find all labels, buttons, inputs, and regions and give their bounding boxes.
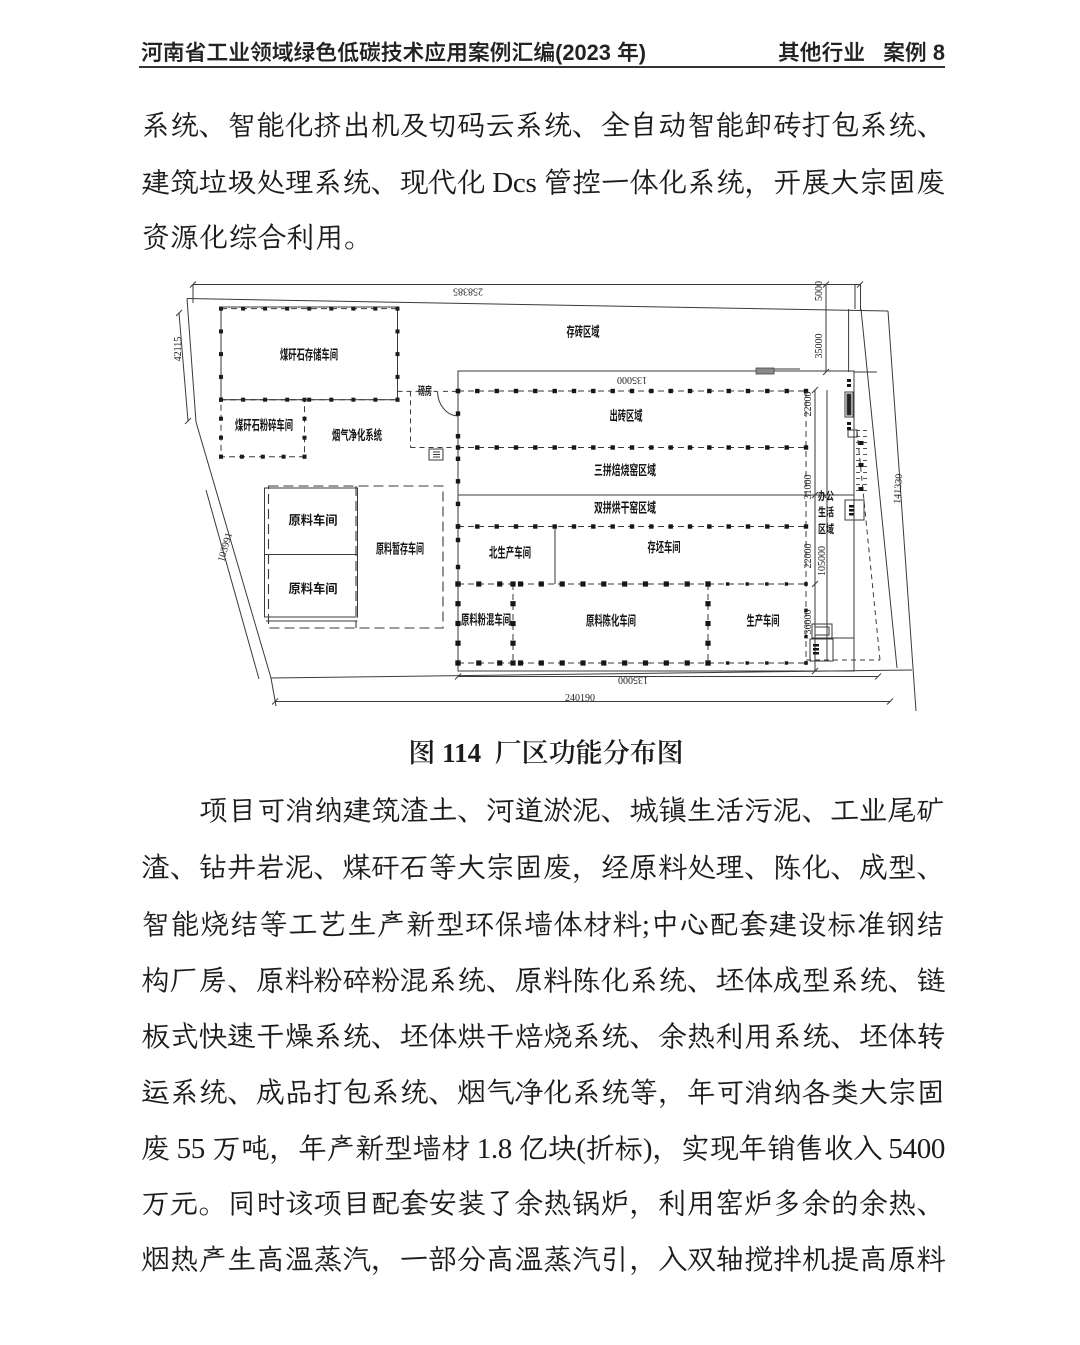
svg-text:258385: 258385 — [453, 286, 483, 297]
svg-text:磅房: 磅房 — [418, 383, 432, 399]
svg-text:22000: 22000 — [803, 392, 814, 417]
svg-text:原料车间: 原料车间 — [289, 578, 338, 597]
svg-text:5000: 5000 — [814, 281, 825, 301]
svg-text:煤矸石存储车间: 煤矸石存储车间 — [280, 344, 338, 364]
svg-text:105000: 105000 — [817, 546, 828, 576]
svg-text:35000: 35000 — [814, 334, 825, 359]
svg-text:双拼烘干窑区域: 双拼烘干窑区域 — [594, 497, 656, 517]
svg-text:煤矸石粉碎车间: 煤矸石粉碎车间 — [235, 414, 293, 434]
svg-text:生产车间: 生产车间 — [747, 610, 780, 630]
svg-text:原料陈化车间: 原料陈化车间 — [586, 610, 636, 630]
svg-text:原料暂存车间: 原料暂存车间 — [376, 538, 424, 558]
svg-text:135000: 135000 — [617, 374, 647, 385]
svg-text:办公: 办公 — [818, 488, 834, 504]
svg-text:生活: 生活 — [818, 504, 834, 520]
svg-text:240190: 240190 — [565, 693, 595, 704]
svg-text:北生产车间: 北生产车间 — [489, 542, 531, 562]
svg-text:36000: 36000 — [803, 610, 814, 635]
svg-text:出砖区域: 出砖区域 — [610, 405, 643, 425]
svg-text:22000: 22000 — [803, 544, 814, 569]
svg-text:三拼焙烧窑区域: 三拼焙烧窑区域 — [594, 459, 656, 479]
svg-text:31000: 31000 — [803, 475, 814, 500]
svg-text:烟气净化系统: 烟气净化系统 — [332, 424, 382, 444]
svg-text:42115: 42115 — [173, 337, 184, 362]
svg-text:135000: 135000 — [618, 674, 648, 685]
svg-text:区域: 区域 — [818, 521, 834, 537]
svg-text:存坯车间: 存坯车间 — [648, 536, 681, 556]
svg-text:存砖区域: 存砖区域 — [567, 321, 600, 341]
svg-text:原料粉混车间: 原料粉混车间 — [461, 609, 511, 629]
svg-text:141330: 141330 — [892, 473, 905, 504]
svg-text:原料车间: 原料车间 — [289, 510, 338, 529]
